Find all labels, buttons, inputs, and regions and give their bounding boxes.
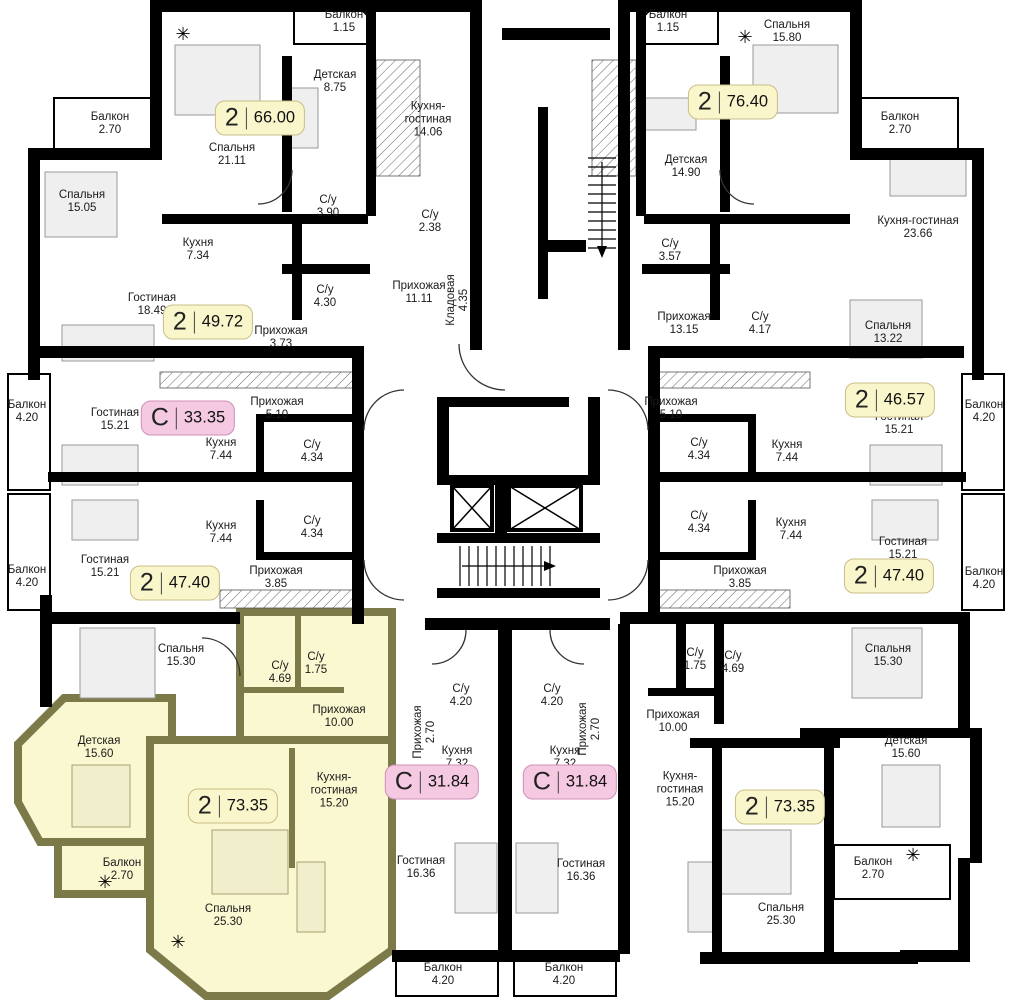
badge-rooms-count: 2: [854, 562, 868, 591]
room-name: Спальня: [758, 902, 804, 915]
room-area: 15.20: [645, 796, 715, 809]
room-area: 11.11: [392, 293, 445, 306]
badge-divider: [194, 311, 195, 333]
room-area: 15.60: [885, 748, 928, 761]
room-name: Прихожая: [644, 396, 697, 409]
apartment-badge[interactable]: 273.35: [735, 790, 825, 825]
room-name: Прихожая: [657, 311, 710, 324]
room-label: С/у4.34: [688, 437, 710, 463]
room-label: С/у2.38: [419, 209, 441, 235]
room-area: 3.90: [317, 207, 339, 220]
badge-area: 47.40: [169, 574, 210, 593]
room-label: Кухня7.44: [776, 517, 807, 543]
apartment-badge[interactable]: 247.40: [130, 566, 220, 601]
room-label: Прихожая3.73: [254, 325, 307, 351]
room-label: Прихожая2.70: [412, 705, 438, 758]
room-area: 5.10: [644, 409, 697, 422]
room-name: Балкон: [965, 399, 1004, 412]
room-area: 1.15: [325, 22, 364, 35]
apartment-badge[interactable]: С31.84: [523, 765, 617, 800]
room-label: Гостиная15.21: [91, 407, 139, 433]
badge-rooms-count: 2: [173, 308, 187, 337]
room-area: 5.10: [250, 409, 303, 422]
badge-area: 31.84: [566, 773, 607, 792]
room-name: Балкон: [881, 111, 920, 124]
room-labels-layer: Балкон1.15Детская8.75Спальня21.11Кухня-г…: [0, 0, 1012, 1000]
room-name: Гостиная: [128, 292, 176, 305]
room-area: 3.57: [659, 251, 681, 264]
room-label: Балкон2.70: [881, 111, 920, 137]
room-label: Кухня7.44: [206, 520, 237, 546]
room-name: Спальня: [764, 19, 810, 32]
room-name: С/у: [419, 209, 441, 222]
room-label: С/у3.90: [317, 194, 339, 220]
room-area: 7.44: [776, 530, 807, 543]
room-area: 2.70: [854, 869, 893, 882]
apartment-badge[interactable]: С33.35: [141, 401, 235, 436]
room-name: С/у: [749, 311, 771, 324]
room-label: Детская8.75: [314, 69, 357, 95]
room-area: 10.00: [646, 722, 699, 735]
room-label: Кладовая4.35: [445, 274, 471, 326]
room-name: Кухня-гостиная: [877, 215, 958, 228]
room-area: 4.20: [424, 975, 463, 988]
badge-divider: [176, 407, 177, 429]
room-area: 2.70: [881, 124, 920, 137]
room-area: 15.30: [158, 656, 204, 669]
room-name: Балкон: [854, 856, 893, 869]
room-label: Спальня21.11: [209, 142, 255, 168]
room-area: 4.34: [301, 452, 323, 465]
room-label: Прихожая5.10: [644, 396, 697, 422]
room-label: Прихожая3.85: [713, 565, 766, 591]
room-name: С/у: [659, 238, 681, 251]
apartment-badge[interactable]: 246.57: [845, 383, 935, 418]
room-area: 3.73: [254, 338, 307, 351]
room-name: Прихожая: [254, 325, 307, 338]
room-label: С/у4.17: [749, 311, 771, 337]
room-name: Балкон: [545, 962, 584, 975]
room-name: Гостиная: [879, 536, 927, 549]
room-area: 4.20: [450, 696, 472, 709]
room-label: Гостиная16.36: [397, 855, 445, 881]
room-label: С/у4.30: [314, 284, 336, 310]
room-label: С/у4.69: [269, 660, 291, 686]
room-area: 4.20: [545, 975, 584, 988]
badge-rooms-count: 2: [745, 793, 759, 822]
room-name: Спальня: [865, 643, 911, 656]
room-area: 15.80: [764, 32, 810, 45]
room-label: Кухня-гостиная23.66: [877, 215, 958, 241]
room-label: Детская14.90: [665, 154, 708, 180]
room-area: 2.70: [425, 705, 438, 758]
room-label: Гостиная15.21: [81, 554, 129, 580]
room-name: Кухня: [442, 745, 473, 758]
room-area: 3.85: [713, 578, 766, 591]
badge-area: 73.35: [227, 797, 268, 816]
badge-area: 66.00: [254, 109, 295, 128]
room-name: С/у: [688, 437, 710, 450]
room-name: С/у: [722, 650, 744, 663]
room-label: Кухня7.44: [772, 439, 803, 465]
room-label: С/у4.20: [450, 683, 472, 709]
room-area: 4.69: [269, 673, 291, 686]
badge-divider: [161, 572, 162, 594]
room-name: С/у: [450, 683, 472, 696]
room-name: Прихожая: [412, 705, 425, 758]
room-area: 16.36: [557, 871, 605, 884]
room-area: 2.70: [590, 702, 603, 755]
badge-area: 46.57: [884, 391, 925, 410]
room-area: 4.20: [965, 579, 1004, 592]
room-area: 16.36: [397, 868, 445, 881]
room-area: 7.44: [206, 450, 237, 463]
room-name: Детская: [885, 735, 928, 748]
badge-divider: [246, 107, 247, 129]
room-area: 2.38: [419, 222, 441, 235]
room-name: Кухня-гостиная: [299, 772, 369, 798]
apartment-badge[interactable]: 276.40: [688, 85, 778, 120]
apartment-badge[interactable]: 249.72: [163, 305, 253, 340]
room-name: Детская: [665, 154, 708, 167]
badge-divider: [875, 565, 876, 587]
room-name: Детская: [78, 735, 121, 748]
room-label: Кухня-гостиная15.20: [299, 772, 369, 811]
room-area: 1.15: [649, 22, 688, 35]
room-area: 15.20: [299, 797, 369, 810]
room-name: Кухня: [550, 745, 581, 758]
room-label: Прихожая2.70: [577, 702, 603, 755]
room-label: Балкон1.15: [325, 9, 364, 35]
room-label: Балкон2.70: [854, 856, 893, 882]
room-label: С/у1.75: [305, 651, 327, 677]
room-label: Балкон2.70: [103, 857, 142, 883]
room-name: Гостиная: [397, 855, 445, 868]
room-area: 15.21: [875, 424, 923, 437]
badge-rooms-count: 2: [140, 569, 154, 598]
room-area: 23.66: [877, 228, 958, 241]
room-label: Балкон1.15: [649, 9, 688, 35]
room-area: 13.15: [657, 324, 710, 337]
room-label: С/у4.20: [541, 683, 563, 709]
room-label: Спальня15.80: [764, 19, 810, 45]
badge-area: 33.35: [184, 409, 225, 428]
badge-area: 47.40: [883, 567, 924, 586]
room-area: 15.60: [78, 748, 121, 761]
room-area: 4.34: [688, 523, 710, 536]
room-area: 1.75: [305, 664, 327, 677]
badge-divider: [766, 796, 767, 818]
room-label: Кухня-гостиная14.06: [393, 101, 463, 140]
room-label: Балкон4.20: [965, 566, 1004, 592]
room-name: Прихожая: [392, 280, 445, 293]
room-name: Спальня: [865, 320, 911, 333]
room-label: Гостиная16.36: [557, 858, 605, 884]
room-label: Прихожая5.10: [250, 396, 303, 422]
room-area: 4.20: [8, 412, 47, 425]
room-name: С/у: [301, 439, 323, 452]
floor-plan: ✳ ✳ ✳ ✳ ✳ Балкон1.15Детская8.75Спальня21…: [0, 0, 1012, 1000]
badge-divider: [420, 771, 421, 793]
badge-area: 49.72: [202, 313, 243, 332]
room-name: Кухня: [183, 237, 214, 250]
room-name: Спальня: [209, 142, 255, 155]
badge-divider: [219, 795, 220, 817]
room-name: Прихожая: [312, 704, 365, 717]
room-label: Спальня25.30: [758, 902, 804, 928]
room-area: 4.20: [541, 696, 563, 709]
room-label: Прихожая13.15: [657, 311, 710, 337]
room-label: Спальня15.05: [59, 189, 105, 215]
room-name: Кухня: [206, 437, 237, 450]
room-name: Прихожая: [713, 565, 766, 578]
room-area: 15.05: [59, 202, 105, 215]
room-name: Балкон: [325, 9, 364, 22]
room-name: Кухня-гостиная: [645, 771, 715, 797]
room-name: С/у: [301, 515, 323, 528]
room-label: Прихожая10.00: [646, 709, 699, 735]
badge-rooms-count: 2: [198, 792, 212, 821]
room-label: С/у4.69: [722, 650, 744, 676]
room-area: 25.30: [758, 915, 804, 928]
room-name: Спальня: [59, 189, 105, 202]
room-name: С/у: [317, 194, 339, 207]
room-label: Прихожая3.85: [249, 565, 302, 591]
room-name: Кухня-гостиная: [393, 101, 463, 127]
room-label: Балкон4.20: [545, 962, 584, 988]
room-name: Гостиная: [557, 858, 605, 871]
room-label: Балкон4.20: [8, 399, 47, 425]
room-label: Спальня25.30: [205, 903, 251, 929]
room-area: 13.22: [865, 333, 911, 346]
room-name: Балкон: [8, 564, 47, 577]
room-name: Балкон: [965, 566, 1004, 579]
room-name: Прихожая: [250, 396, 303, 409]
room-area: 21.11: [209, 155, 255, 168]
room-name: Балкон: [103, 857, 142, 870]
room-area: 1.75: [684, 660, 706, 673]
room-name: С/у: [314, 284, 336, 297]
apartment-badge-selected[interactable]: 273.35: [188, 789, 278, 824]
room-area: 10.00: [312, 717, 365, 730]
room-name: Балкон: [424, 962, 463, 975]
room-name: С/у: [684, 647, 706, 660]
room-name: Гостиная: [91, 407, 139, 420]
apartment-badge[interactable]: С31.84: [385, 765, 479, 800]
room-area: 15.21: [91, 420, 139, 433]
room-area: 7.34: [183, 250, 214, 263]
room-name: Кухня: [776, 517, 807, 530]
room-label: Кухня7.44: [206, 437, 237, 463]
room-label: Прихожая11.11: [392, 280, 445, 306]
badge-divider: [876, 389, 877, 411]
room-label: С/у4.34: [688, 510, 710, 536]
apartment-badge[interactable]: 266.00: [215, 101, 305, 136]
room-area: 4.69: [722, 663, 744, 676]
room-label: С/у4.34: [301, 515, 323, 541]
room-label: С/у1.75: [684, 647, 706, 673]
room-name: Кладовая: [445, 274, 458, 326]
room-area: 2.70: [103, 870, 142, 883]
room-name: Спальня: [205, 903, 251, 916]
apartment-badge[interactable]: 247.40: [844, 559, 934, 594]
room-name: С/у: [688, 510, 710, 523]
room-label: Кухня7.34: [183, 237, 214, 263]
room-name: Прихожая: [646, 709, 699, 722]
room-name: Детская: [314, 69, 357, 82]
badge-rooms-count: 2: [698, 88, 712, 117]
room-name: Кухня: [206, 520, 237, 533]
badge-area: 31.84: [428, 773, 469, 792]
room-label: Детская15.60: [78, 735, 121, 761]
room-area: 4.35: [458, 274, 471, 326]
room-area: 25.30: [205, 916, 251, 929]
badge-divider: [719, 91, 720, 113]
room-name: Гостиная: [81, 554, 129, 567]
room-label: Балкон2.70: [91, 111, 130, 137]
badge-area: 76.40: [727, 93, 768, 112]
room-area: 4.30: [314, 297, 336, 310]
room-label: Детская15.60: [885, 735, 928, 761]
room-name: Спальня: [158, 643, 204, 656]
room-name: Кухня: [772, 439, 803, 452]
room-name: С/у: [305, 651, 327, 664]
badge-rooms-count: С: [395, 768, 413, 797]
room-area: 4.34: [688, 450, 710, 463]
badge-rooms-count: С: [151, 404, 169, 433]
badge-rooms-count: 2: [225, 104, 239, 133]
room-area: 3.85: [249, 578, 302, 591]
room-label: Кухня-гостиная15.20: [645, 771, 715, 810]
room-area: 4.34: [301, 528, 323, 541]
room-name: Балкон: [91, 111, 130, 124]
room-name: С/у: [269, 660, 291, 673]
room-name: С/у: [541, 683, 563, 696]
room-area: 2.70: [91, 124, 130, 137]
room-area: 7.44: [772, 452, 803, 465]
room-area: 4.17: [749, 324, 771, 337]
room-label: Спальня15.30: [865, 643, 911, 669]
room-label: Прихожая10.00: [312, 704, 365, 730]
badge-divider: [558, 771, 559, 793]
room-label: Балкон4.20: [424, 962, 463, 988]
badge-rooms-count: 2: [855, 386, 869, 415]
room-label: С/у3.57: [659, 238, 681, 264]
room-area: 14.06: [393, 126, 463, 139]
badge-rooms-count: С: [533, 768, 551, 797]
room-name: Балкон: [649, 9, 688, 22]
room-area: 15.30: [865, 656, 911, 669]
room-label: Спальня15.30: [158, 643, 204, 669]
room-label: Балкон4.20: [8, 564, 47, 590]
room-area: 4.20: [965, 412, 1004, 425]
room-label: Балкон4.20: [965, 399, 1004, 425]
room-area: 7.44: [206, 533, 237, 546]
room-area: 14.90: [665, 167, 708, 180]
room-area: 15.21: [81, 567, 129, 580]
room-area: 4.20: [8, 577, 47, 590]
room-name: Прихожая: [249, 565, 302, 578]
room-label: С/у4.34: [301, 439, 323, 465]
badge-area: 73.35: [774, 798, 815, 817]
room-label: Спальня13.22: [865, 320, 911, 346]
room-name: Балкон: [8, 399, 47, 412]
room-area: 8.75: [314, 82, 357, 95]
